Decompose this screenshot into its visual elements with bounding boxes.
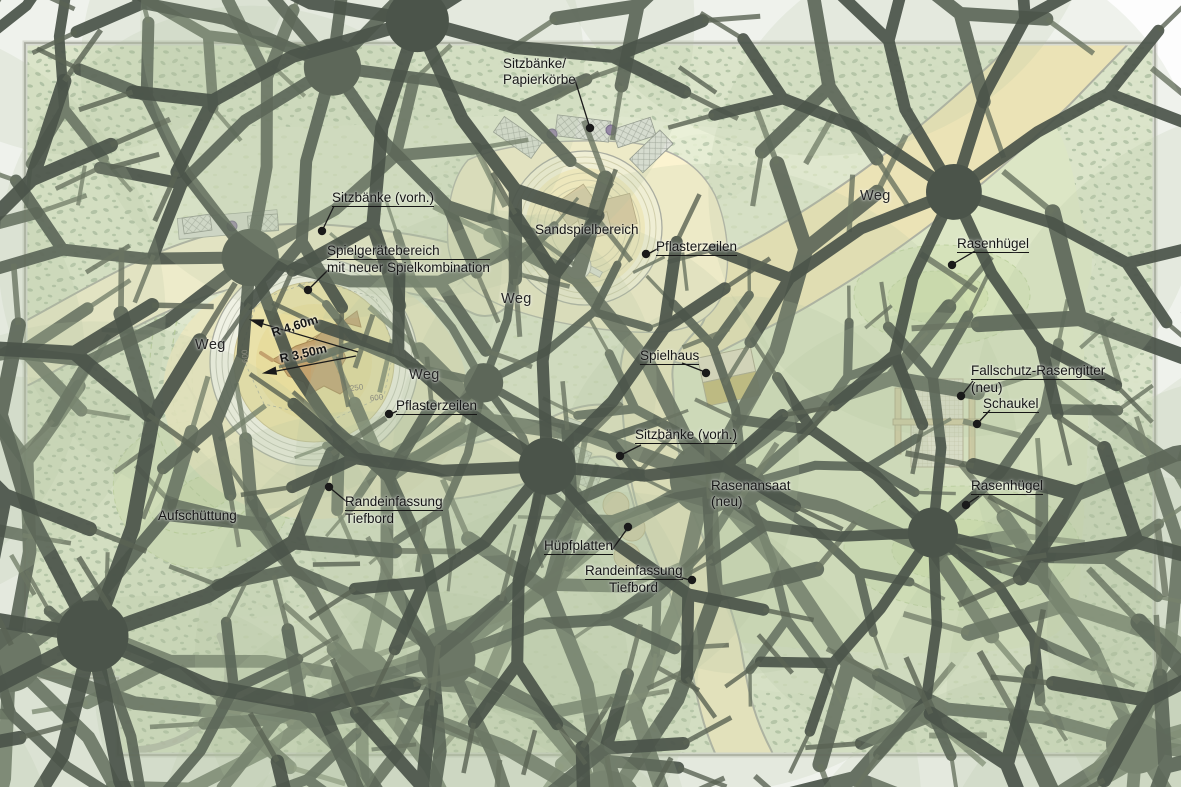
label-dim-600-left: 600 [240,349,251,363]
label-rasenhuegel-top: Rasenhügel [957,236,1029,253]
label-rasenansaat: Rasenansaat (neu) [711,478,791,511]
label-schaukel: Schaukel [983,396,1039,413]
label-dim-250: 250 [349,382,363,393]
label-huepfplatten: Hüpfplatten [544,538,613,555]
label-spielhaus: Spielhaus [640,348,699,365]
label-spielgeraetebereich: Spielgerätebereich mit neuer Spielkombin… [327,243,490,277]
label-weg-right: Weg [409,367,440,385]
label-aufschuettung: Aufschüttung [158,508,237,524]
label-sandspielbereich: Sandspielbereich [535,222,639,238]
label-pflasterzeilen-left: Pflasterzeilen [396,398,477,415]
label-weg-top: Weg [860,188,891,206]
label-weg-center: Weg [501,291,532,309]
label-fallschutz-rasengitter: Fallschutz-Rasengitter (neu) [971,363,1105,397]
label-sitzbaenke-vorh-center: Sitzbänke (vorh.) [635,427,737,444]
label-rasenhuegel-bottom: Rasenhügel [971,478,1043,495]
label-randeinfassung-bottom: Randeinfassung Tiefbord [585,563,683,597]
label-weg-left: Weg [195,337,226,355]
site-plan: Sitzbänke/ Papierkörbe Weg Weg Weg Weg S… [0,0,1181,787]
label-sitzbaenke-papierkoerbe: Sitzbänke/ Papierkörbe [503,56,576,89]
label-dim-600-bottom: 600 [369,392,383,403]
label-pflasterzeilen-top: Pflasterzeilen [656,239,737,256]
label-randeinfassung-left: Randeinfassung Tiefbord [345,494,443,528]
label-sitzbaenke-vorh-left: Sitzbänke (vorh.) [332,190,434,207]
